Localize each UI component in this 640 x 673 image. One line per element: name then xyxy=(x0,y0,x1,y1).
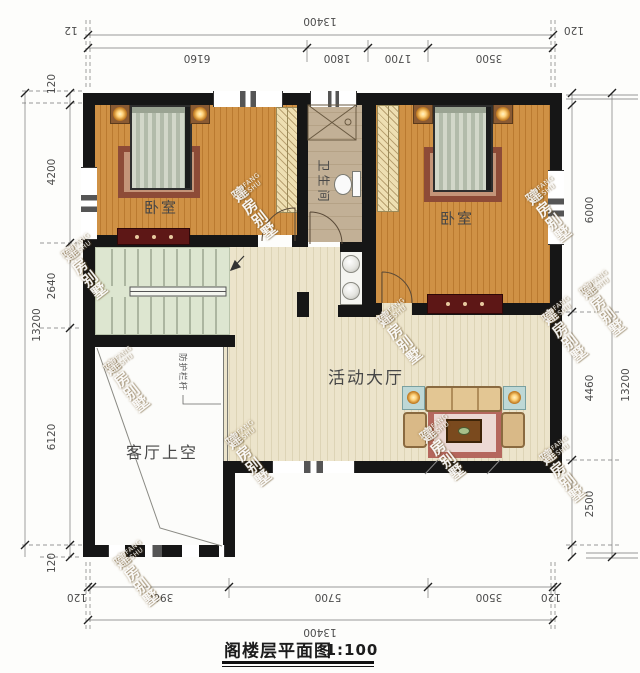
wall-stairs-bottom xyxy=(83,335,235,347)
window-hall-bottom xyxy=(272,461,355,473)
hall-armchair xyxy=(501,412,525,448)
dim-top-seg: 6160 xyxy=(184,52,211,64)
table-lamp-icon xyxy=(407,391,420,404)
dim-left-seg: 2640 xyxy=(46,273,58,300)
coffee-table-decor xyxy=(458,427,470,435)
bedside-lamp-icon xyxy=(496,107,510,121)
wall-corridor-stub xyxy=(297,292,309,317)
dim-left-seg: 120 xyxy=(46,74,58,94)
hall-sofa xyxy=(425,386,502,412)
room-label-bedroom-left: 卧室 xyxy=(144,197,178,218)
dim-right-seg: 2500 xyxy=(584,491,596,518)
bedroom-left-bed xyxy=(130,105,192,190)
wall-bedroom1-bathroom xyxy=(297,105,308,247)
room-label-void: 客厅上空 xyxy=(126,439,198,463)
dim-top-overall: 13400 xyxy=(303,15,336,27)
wash-basin-icon xyxy=(342,255,360,273)
table-lamp-icon xyxy=(508,391,521,404)
bedside-lamp-icon xyxy=(193,107,207,121)
window-top-bedroom-left xyxy=(213,91,283,107)
dim-bottom-seg: 120 xyxy=(541,591,561,603)
dim-left-overall: 13200 xyxy=(31,308,43,341)
dim-top-right-end: 120 xyxy=(564,24,584,36)
wall-bedroom1-bottom xyxy=(292,235,308,247)
railing-note-label: 防护栏杆 xyxy=(177,353,189,391)
dim-right-seg: 4460 xyxy=(584,375,596,402)
hall-armchair xyxy=(403,412,427,448)
floor-plan-drawing: 卧室 卧室 卫生间 活动大厅 客厅上空 防护栏杆 13400 12 120 61… xyxy=(0,0,640,673)
stairs-floor xyxy=(95,247,230,335)
wall-bedroom2-bottom xyxy=(362,303,382,315)
room-label-bathroom: 卫生间 xyxy=(316,159,333,204)
wall-bathroom-bottom xyxy=(340,242,376,252)
bedroom-right-wardrobe xyxy=(377,105,399,212)
window-top-bathroom xyxy=(310,91,357,107)
window-left-bedroom xyxy=(81,167,97,240)
drawing-scale: 1:100 xyxy=(326,641,379,659)
room-label-bedroom-right: 卧室 xyxy=(440,208,474,229)
wall-bathroom-bedroom2 xyxy=(362,105,376,317)
toilet-icon xyxy=(352,171,361,197)
dim-bottom-seg: 5700 xyxy=(315,591,342,603)
toilet-icon xyxy=(334,174,352,195)
window-right-bedroom xyxy=(548,170,564,245)
dim-right-overall: 13200 xyxy=(620,368,632,401)
dim-top-seg: 1800 xyxy=(324,52,351,64)
room-label-hall: 活动大厅 xyxy=(328,364,404,389)
dim-top-left-end: 12 xyxy=(64,24,77,36)
dim-bottom-seg: 3960 xyxy=(147,591,174,603)
dim-left-seg: 4200 xyxy=(46,159,58,186)
wall-left xyxy=(83,93,95,557)
bedroom-right-bed xyxy=(433,105,493,192)
bedroom-left-wardrobe xyxy=(276,107,299,213)
drawing-caption: 阁楼层平面图 xyxy=(224,637,332,662)
bedside-lamp-icon xyxy=(416,107,430,121)
caption-underline xyxy=(222,661,374,664)
dim-top-seg: 3500 xyxy=(476,52,503,64)
dim-left-seg: 120 xyxy=(46,553,58,573)
dim-left-seg: 6120 xyxy=(46,424,58,451)
wash-basin-icon xyxy=(342,282,360,300)
wall-void-right xyxy=(223,461,235,557)
dim-top-seg: 1700 xyxy=(385,52,412,64)
dim-right-seg: 6000 xyxy=(584,197,596,224)
dim-bottom-seg: 120 xyxy=(67,591,87,603)
window-void-bottom-mullions xyxy=(108,545,225,557)
dim-bottom-seg: 3500 xyxy=(476,591,503,603)
caption-underline xyxy=(222,666,374,667)
bedside-lamp-icon xyxy=(113,107,127,121)
wall-right xyxy=(550,93,562,473)
